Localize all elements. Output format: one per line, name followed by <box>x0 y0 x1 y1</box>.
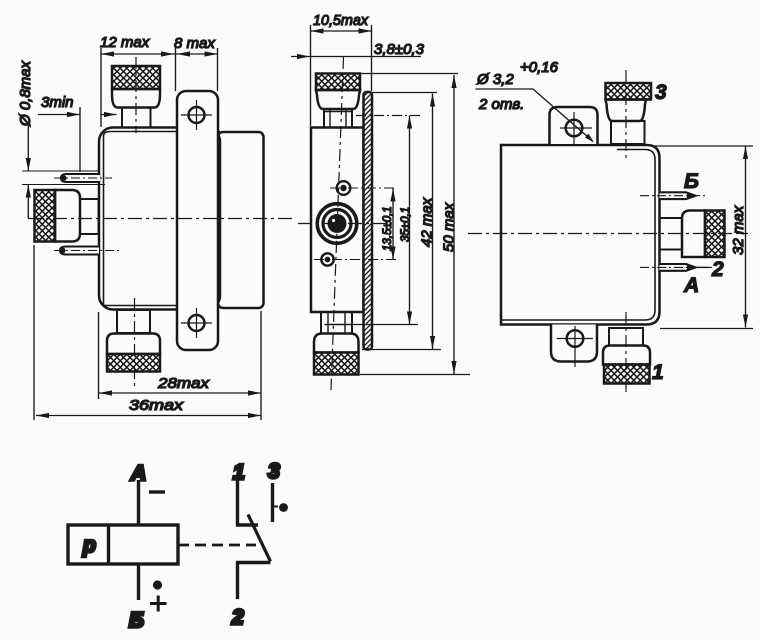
svg-text:13,5±0,1: 13,5±0,1 <box>382 206 394 251</box>
svg-text:35±0,1: 35±0,1 <box>400 207 412 242</box>
svg-text:2: 2 <box>711 258 724 281</box>
svg-text:50 max: 50 max <box>441 202 458 252</box>
svg-text:А: А <box>130 462 146 485</box>
svg-text:42 max: 42 max <box>419 197 436 247</box>
svg-text:3,8±0,3: 3,8±0,3 <box>374 41 425 58</box>
svg-text:+0,16: +0,16 <box>520 59 559 76</box>
svg-text:Б: Б <box>684 170 699 193</box>
svg-text:10,5max: 10,5max <box>313 12 368 29</box>
svg-text:1: 1 <box>233 461 245 484</box>
svg-text:1: 1 <box>652 361 664 384</box>
svg-text:36max: 36max <box>129 397 184 414</box>
svg-text:р: р <box>82 534 96 557</box>
svg-text:Б: Б <box>129 609 144 632</box>
svg-text:3: 3 <box>268 460 280 483</box>
svg-text:Ø 3,2: Ø 3,2 <box>476 71 514 88</box>
svg-text:Ø 0,8max: Ø 0,8max <box>17 60 34 127</box>
svg-text:28max: 28max <box>157 375 210 392</box>
svg-text:3min: 3min <box>41 94 74 111</box>
svg-text:8 max: 8 max <box>174 35 215 52</box>
svg-text:32 max: 32 max <box>730 205 747 255</box>
svg-text:3: 3 <box>655 81 667 104</box>
svg-text:А: А <box>683 274 699 297</box>
svg-text:2: 2 <box>231 606 244 629</box>
svg-text:12 max: 12 max <box>100 34 150 51</box>
svg-text:2 отв.: 2 отв. <box>478 96 524 113</box>
